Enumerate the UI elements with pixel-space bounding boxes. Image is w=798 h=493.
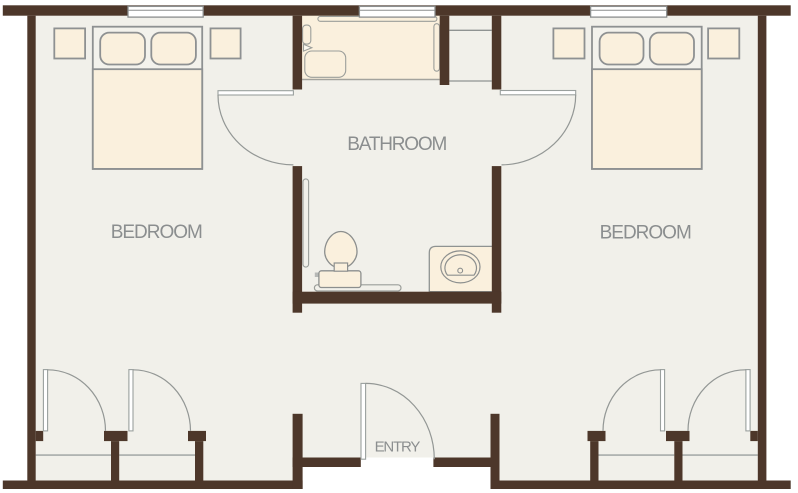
svg-text:BEDROOM: BEDROOM [600,222,691,243]
svg-text:BEDROOM: BEDROOM [111,222,202,243]
svg-text:ENTRY: ENTRY [375,438,421,455]
svg-text:BATHROOM: BATHROOM [347,134,446,155]
